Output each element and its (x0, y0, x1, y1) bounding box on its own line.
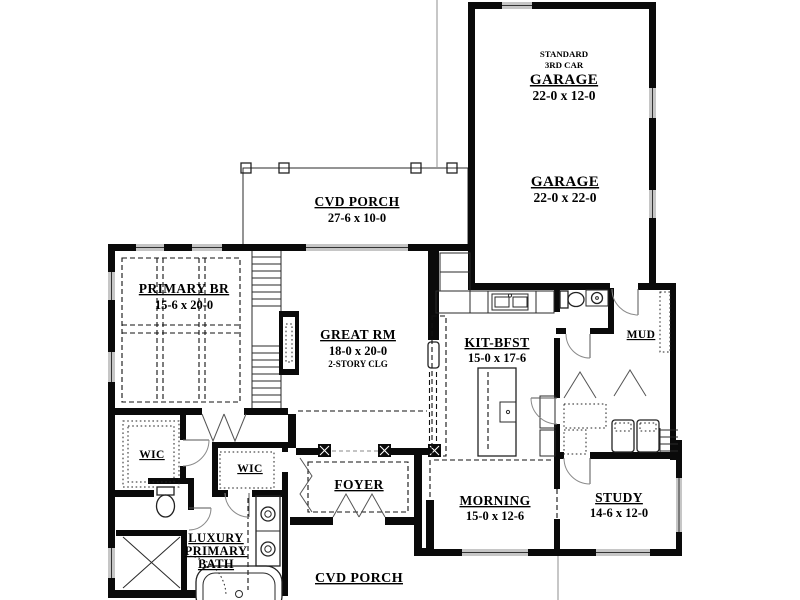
label-morning-title: MORNING (459, 493, 530, 508)
wic1-door (183, 440, 209, 466)
toilet-icon (560, 291, 568, 308)
floor-plan-page: STANDARD 3RD CAR GARAGE 22-0 x 12-0 GARA… (0, 0, 800, 600)
wall-segment (556, 328, 566, 334)
wall-segment (116, 530, 186, 536)
label-great-note: 2-STORY CLG (328, 359, 387, 369)
wall-segment (288, 414, 296, 448)
wall-segment (244, 408, 288, 415)
double-vanity (256, 496, 280, 566)
wall-segment (282, 442, 288, 452)
label-bath-line2: PRIMARY (185, 544, 248, 558)
wall-segment (188, 484, 194, 510)
wall-segment (554, 459, 560, 489)
sink-icon (261, 507, 275, 521)
study-door (564, 458, 590, 484)
wall-segment (112, 490, 154, 497)
wall-segment (108, 408, 202, 415)
label-mud-title: MUD (627, 329, 656, 341)
mud-hall-door (564, 372, 596, 398)
island-sink (500, 402, 516, 422)
tray-ceiling (122, 258, 240, 402)
wall-segment (590, 452, 682, 459)
label-primary-dims: 15-6 x 20-0 (155, 298, 213, 312)
wall-segment (180, 466, 186, 480)
label-wic1-title: WIC (139, 449, 164, 461)
washer-icon (612, 420, 634, 452)
label-kitchen-dims: 15-0 x 17-6 (468, 351, 526, 365)
toilet-icon (157, 487, 174, 495)
label-wic2-title: WIC (237, 463, 262, 475)
room-labels: STANDARD 3RD CAR GARAGE 22-0 x 12-0 GARA… (139, 49, 656, 586)
label-great-title: GREAT RM (320, 327, 396, 342)
wall-segment (391, 448, 434, 455)
wall-segment (528, 549, 596, 556)
wall-segment (108, 300, 115, 352)
label-garage3-title: GARAGE (530, 72, 598, 88)
wall-segment (282, 472, 288, 596)
wall-segment (180, 414, 186, 440)
label-kitchen-title: KIT-BFST (465, 335, 530, 350)
wall-segment (108, 244, 115, 272)
wall-segment (148, 478, 194, 484)
garage-mud-door (612, 289, 638, 315)
shower (123, 537, 180, 588)
wall-segment (468, 2, 475, 283)
label-foyer-title: FOYER (334, 477, 383, 492)
wall-segment (554, 288, 560, 312)
wall-segment (554, 338, 560, 398)
label-primary-title: PRIMARY BR (139, 281, 229, 296)
kitchen-sink (492, 294, 528, 310)
primary-double-door (202, 414, 246, 441)
label-garage-dims: 22-0 x 22-0 (534, 190, 597, 205)
wall-segment (428, 244, 439, 340)
wall-segment (164, 244, 192, 251)
staircase (252, 251, 281, 408)
label-morning-dims: 15-0 x 12-6 (466, 509, 524, 523)
hall-bifold-door (300, 458, 312, 512)
wall-segment (650, 549, 682, 556)
lockers (660, 292, 670, 352)
dryer-icon (637, 420, 659, 452)
wall-segment (212, 442, 218, 496)
wall-segment (556, 452, 564, 459)
wall-segment (212, 442, 282, 448)
bathtub (196, 566, 282, 600)
label-garage3-line2: 3RD CAR (545, 60, 584, 70)
wall-segment (468, 283, 610, 290)
wall-segment (590, 328, 612, 334)
toilet-icon (157, 495, 175, 517)
wall-segment (108, 590, 196, 598)
wall-segment (108, 382, 115, 548)
water-closet-door (189, 508, 211, 530)
wic2-door (225, 493, 249, 517)
column-great-room (428, 342, 439, 444)
kitchen-island (478, 368, 516, 456)
label-study-title: STUDY (595, 490, 643, 505)
powder-door (566, 334, 590, 358)
label-bath-line1: LUXURY (188, 531, 243, 545)
front-double-door (333, 494, 385, 517)
wall-segment (414, 455, 422, 550)
label-porch-top-title: CVD PORCH (315, 194, 400, 209)
wall-segment (222, 244, 306, 251)
powder-room (560, 290, 608, 308)
wall-segment (649, 118, 656, 190)
wall-segment (290, 517, 333, 525)
wall-segment (426, 500, 434, 556)
fireplace (279, 311, 299, 375)
label-study-dims: 14-6 x 12-0 (590, 506, 648, 520)
wall-segment (676, 440, 682, 478)
wall-segment (649, 218, 656, 289)
pantry-shelves (564, 430, 586, 454)
toilet-icon (568, 293, 584, 307)
label-porch-top-dims: 27-6 x 10-0 (328, 211, 386, 225)
wall-segment (532, 2, 656, 9)
label-garage3-dims: 22-0 x 12-0 (533, 88, 596, 103)
pantry-shelves (564, 404, 606, 428)
label-porch-bottom-title: CVD PORCH (315, 571, 403, 586)
water-closet (157, 487, 175, 517)
label-garage-title: GARAGE (531, 174, 599, 190)
wall-segment (670, 288, 676, 460)
label-garage3-line1: STANDARD (540, 49, 588, 59)
label-great-dims: 18-0 x 20-0 (329, 344, 387, 358)
kitchen-mud-door (531, 398, 557, 424)
counter (540, 430, 555, 456)
floor-plan-drawing: STANDARD 3RD CAR GARAGE 22-0 x 12-0 GARA… (0, 0, 800, 600)
wall-segment (649, 2, 656, 88)
wall-segment (181, 530, 187, 594)
label-bath-line3: BATH (198, 557, 234, 571)
pantry-door (614, 370, 646, 396)
sink-icon (261, 542, 275, 556)
wall-segment (554, 519, 560, 549)
